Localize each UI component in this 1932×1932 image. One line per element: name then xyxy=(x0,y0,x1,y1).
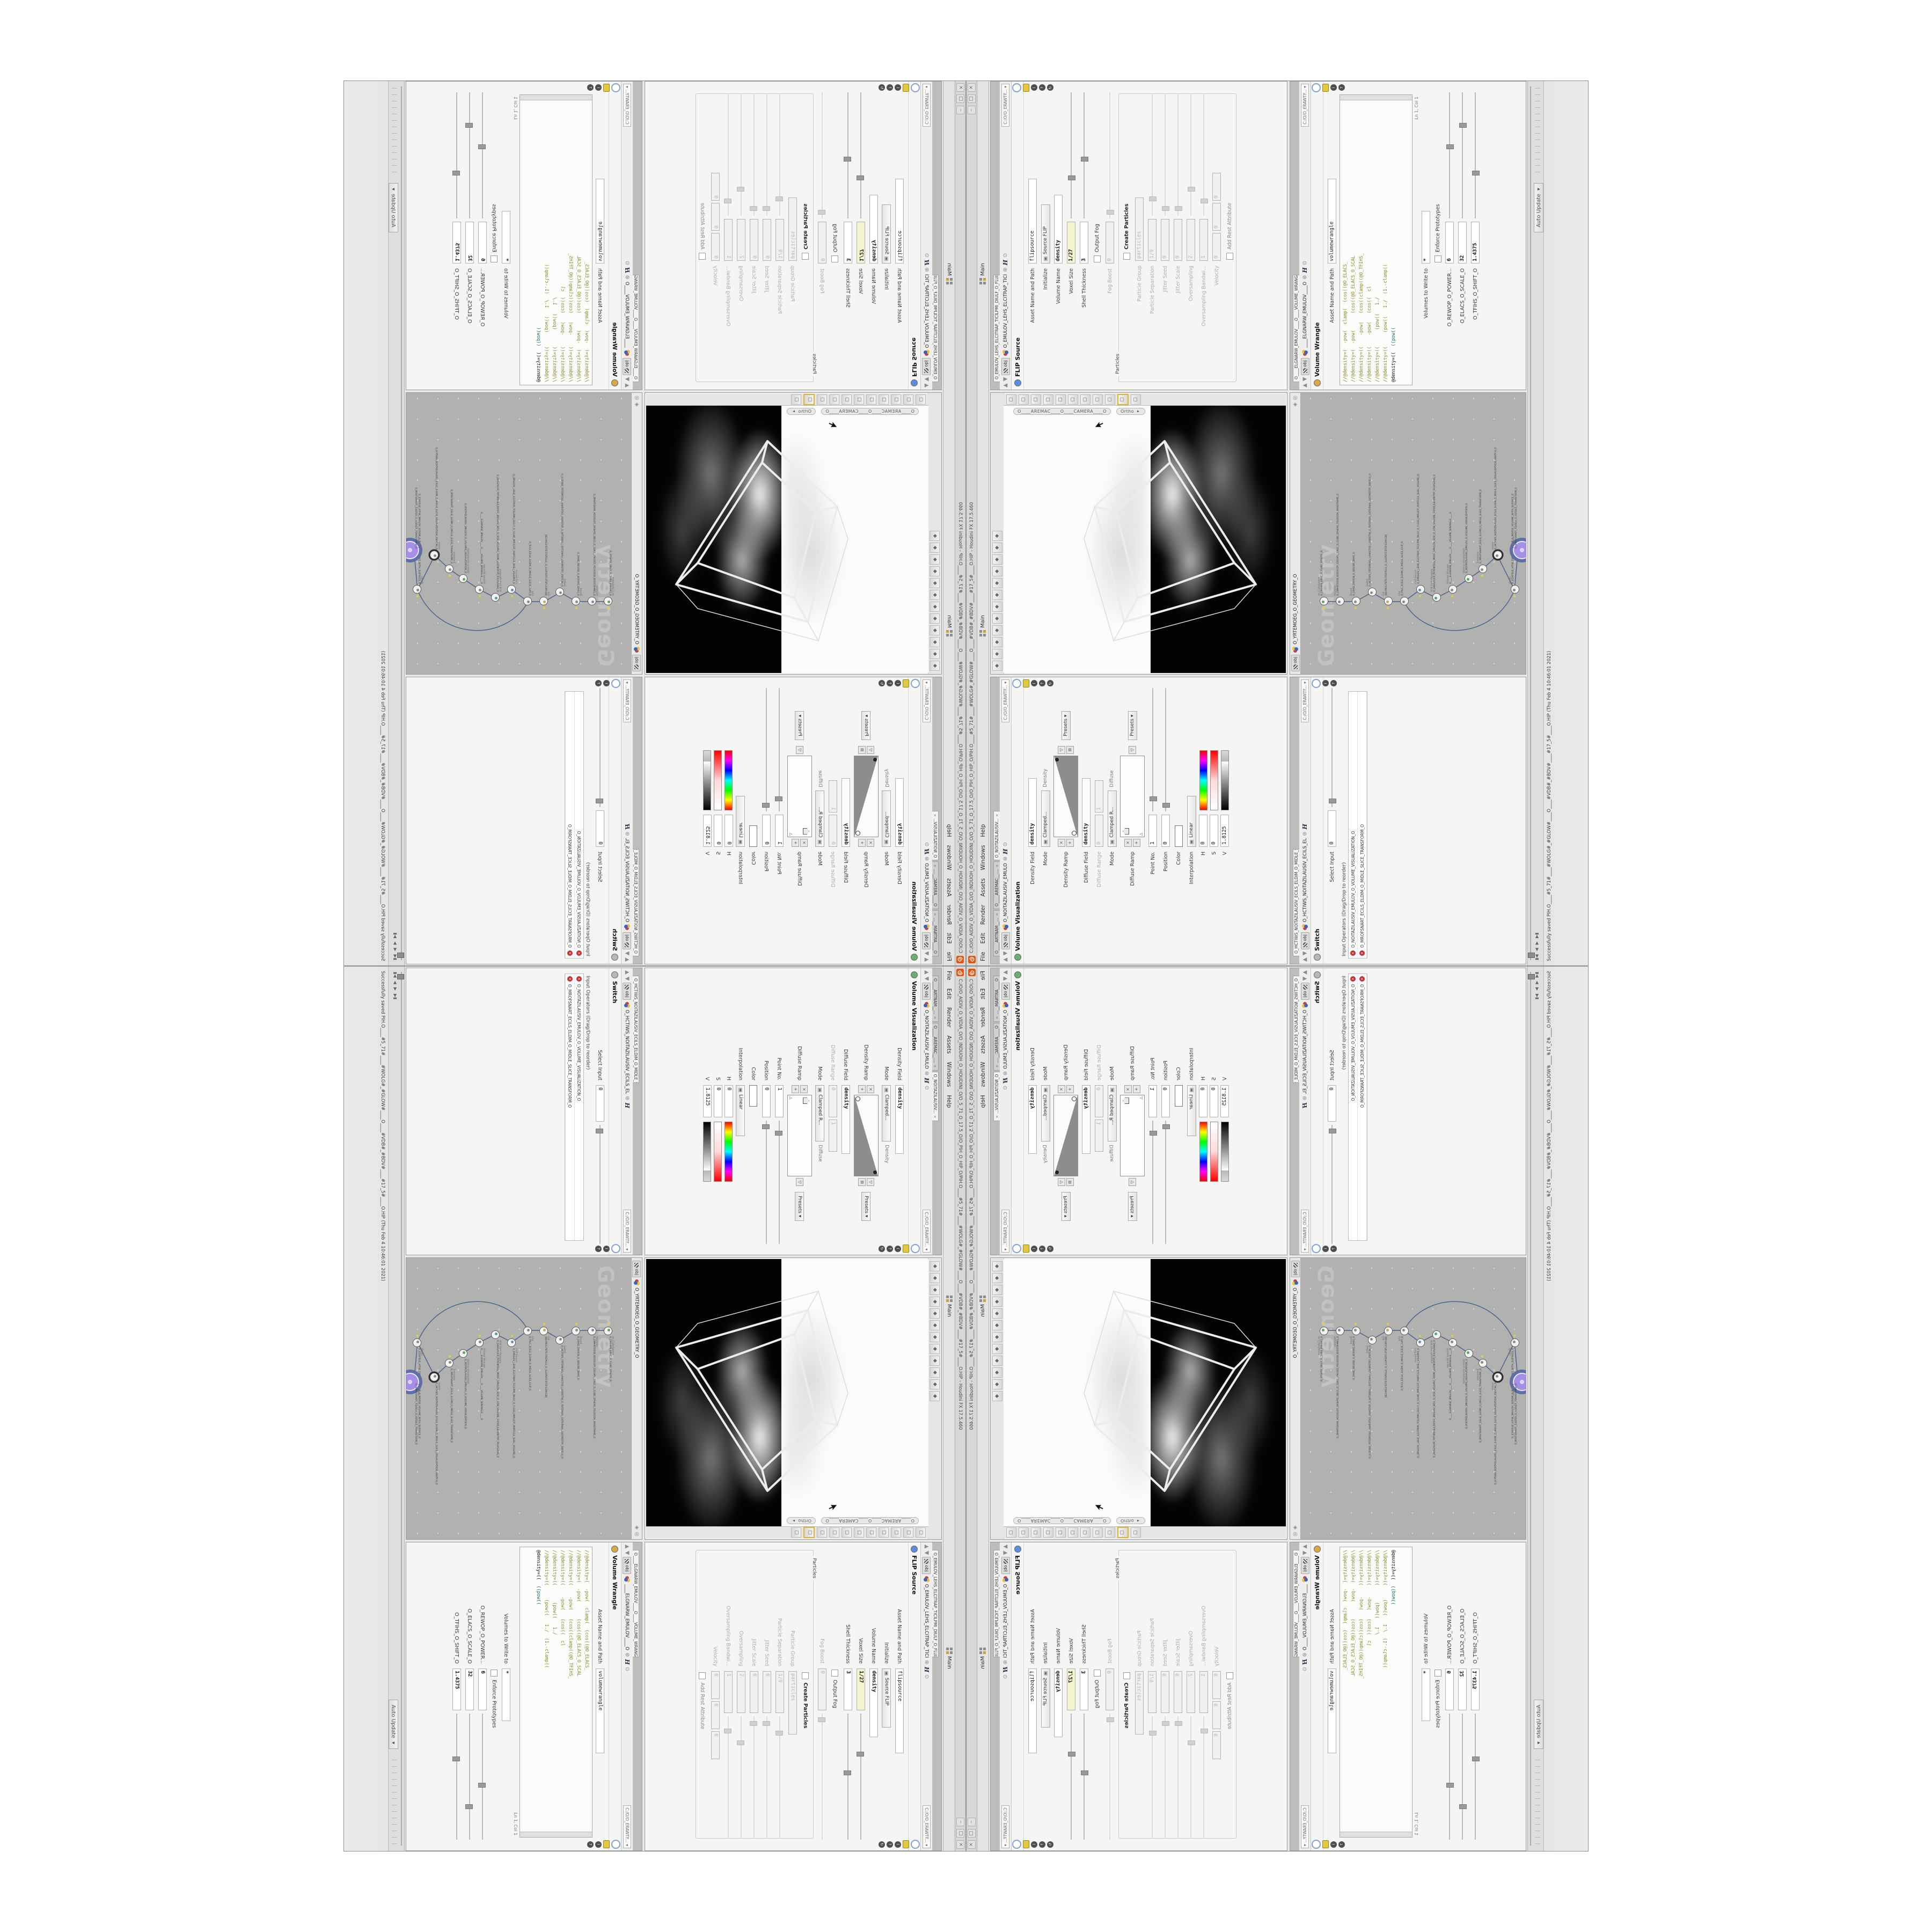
obj-context-chip[interactable]: obj xyxy=(633,1261,641,1277)
tripod-icon[interactable]: ▢ xyxy=(1056,1527,1066,1538)
node-circle[interactable] xyxy=(1384,597,1393,605)
presets-dropdown[interactable]: Presets ▾ xyxy=(1128,711,1137,740)
fog-boost-slider[interactable] xyxy=(818,92,826,218)
houdini-help-icon[interactable]: H xyxy=(923,1078,930,1083)
jitter-scale-slider[interactable] xyxy=(750,94,758,216)
enforce-prototypes-checkbox[interactable] xyxy=(491,255,498,262)
select-input-field[interactable]: 0 xyxy=(1328,810,1336,847)
shell-thickness-slider[interactable] xyxy=(1080,1714,1088,1840)
node-flag-dot[interactable] xyxy=(608,607,610,609)
node-circle[interactable] xyxy=(1352,597,1360,605)
input-operator-row[interactable]: ×O_NOITAZILAUSIV_EMULOV_O_VOLUME_VISUALI… xyxy=(574,974,583,1240)
node-flag-dot[interactable] xyxy=(479,1335,481,1337)
node-circle[interactable] xyxy=(1320,1327,1328,1335)
pane-tabbar[interactable]: O_HCTIWS_NOITAZILAUSIV_ECILS_ELDIM_O_MID… xyxy=(1290,968,1299,1255)
network-path[interactable]: O_YRTEMOEG_O_GEOMETRY_O xyxy=(1293,574,1298,645)
diffuse-field-input[interactable]: density xyxy=(1082,778,1091,847)
position-input[interactable]: 0 xyxy=(1161,815,1170,847)
node-circle[interactable] xyxy=(539,597,548,605)
voxel-size-slider[interactable] xyxy=(857,92,865,218)
radial-menu-icon[interactable] xyxy=(911,83,920,92)
close-tab-icon[interactable]: × xyxy=(933,913,938,916)
software-path-dropdown[interactable]: C:/O/O_ERAWTF...▾ xyxy=(1301,679,1309,722)
network-path[interactable]: O_YRTEMOEG_O_GEOMETRY_O xyxy=(1293,1287,1298,1358)
network-node[interactable]: Volume VisualizationO_NOITAZILAUSIV_EMUL… xyxy=(1465,574,1473,583)
radial-menu-icon[interactable] xyxy=(1012,679,1021,688)
houdini-help-icon[interactable]: H xyxy=(1002,1078,1009,1083)
pane-tabbar[interactable]: O____ARTNAM__...× O____AREMAC__....× O_N… xyxy=(932,968,941,1255)
obj-context-chip[interactable]: obj xyxy=(1301,1557,1309,1574)
breadcrumb[interactable]: O_EMULOV_LEHS_ELCITRAP_TICI xyxy=(1003,274,1008,348)
radial-menu-icon[interactable] xyxy=(1012,1840,1021,1849)
output-fog-checkbox[interactable] xyxy=(1094,1670,1101,1677)
network-node[interactable]: Volume WrangleO____ELGNARW_EMULOV____O__… xyxy=(1448,1338,1457,1347)
voxel-size-slider[interactable] xyxy=(1067,92,1075,218)
velocity-x-input[interactable]: 0 xyxy=(1212,233,1221,261)
view-pivot-icon[interactable]: ◆ xyxy=(992,566,1002,576)
desktop-chip[interactable]: Main xyxy=(979,1296,986,1317)
obj-context-chip[interactable]: obj xyxy=(1301,358,1309,375)
help-circle-icon[interactable]: ? xyxy=(887,1841,893,1848)
scale-input[interactable]: 32 xyxy=(465,222,474,264)
back-arrow-icon[interactable]: ▲ xyxy=(924,383,930,387)
saturation-bar[interactable] xyxy=(714,750,722,810)
houdini-help-icon[interactable]: H xyxy=(624,824,631,829)
remove-input-icon[interactable]: × xyxy=(1359,950,1365,956)
node-circle[interactable] xyxy=(507,1338,516,1347)
gear-icon[interactable]: ⊛ xyxy=(924,267,930,272)
snap-icon[interactable]: ◆ xyxy=(992,590,1002,600)
viewport-image[interactable]: O____AREMAC____O____CAMERA____O Ortho ▾ xyxy=(1004,1259,1286,1526)
menu-assets[interactable]: Assets xyxy=(980,1035,986,1053)
camera-lock-icon[interactable]: ◆ xyxy=(930,543,940,553)
saturation-input[interactable]: 0 xyxy=(1210,1085,1218,1117)
gear-icon[interactable]: ⊛ xyxy=(924,857,930,861)
hue-input[interactable]: 0 xyxy=(724,815,733,847)
grid-display-icon[interactable]: ▢ xyxy=(803,394,815,405)
magnifier-icon[interactable]: ⊙ xyxy=(1002,253,1008,258)
network-node[interactable]: FileJBO.MD1.PETS.TREPOLS_O_SLOPERT.STEP.… xyxy=(1384,1327,1393,1335)
ramp-flip-button[interactable]: ▽ xyxy=(1129,746,1136,754)
node-circle[interactable] xyxy=(1479,565,1487,573)
network-node[interactable]: SwitchO_HCTIWS_NOITAZILAUSIV_ECILS_ELDIM… xyxy=(430,1373,438,1381)
back-arrow-icon[interactable]: ▲ xyxy=(624,970,630,975)
value-input[interactable]: 1.8125 xyxy=(703,1085,712,1117)
radial-menu-icon[interactable] xyxy=(1012,1244,1021,1253)
lasso-icon[interactable]: ◆ xyxy=(992,1344,1002,1354)
add-rest-attribute-checkbox[interactable] xyxy=(1226,1672,1233,1679)
oversampling-slider[interactable] xyxy=(1187,94,1195,216)
network-node[interactable]: Volume VisualizationO_NOITAZILAUSIV_EMUL… xyxy=(1465,1349,1473,1358)
back-arrow-icon[interactable]: ▲ xyxy=(924,957,930,962)
asset-name-input[interactable]: volumewrangle xyxy=(1328,1668,1336,1753)
view-pivot-icon[interactable]: ◆ xyxy=(992,1356,1002,1366)
select-input-field[interactable]: 0 xyxy=(596,810,604,847)
oversampling-input[interactable]: 2 xyxy=(1187,219,1195,261)
tab-flip-source[interactable]: O_EMULOV_LEHS_ELCITRAP_TICILPMI_DIULF_O_… xyxy=(932,275,939,382)
value-bar[interactable] xyxy=(704,750,712,810)
input-operator-row[interactable]: ×O_NOITAZILAUSIV_EMULOV_O_VOLUME_VISUALI… xyxy=(1349,974,1358,1240)
network-node[interactable]: an_CubeSphereO_EREHPS_EBUC_O_CUBE_SPHERE… xyxy=(604,597,612,605)
obj-context-chip[interactable]: obj xyxy=(923,983,931,999)
translate-icon[interactable]: ◆ xyxy=(992,637,1002,647)
value-bar[interactable] xyxy=(704,1122,712,1182)
obj-context-chip[interactable]: obj xyxy=(923,1557,931,1574)
forward-arrow-icon[interactable]: ▼ xyxy=(1302,977,1308,981)
obj-context-chip[interactable]: obj xyxy=(1301,983,1309,999)
shift-input[interactable]: 1.4375 xyxy=(1471,222,1480,264)
oversampling-input[interactable]: 2 xyxy=(1187,1671,1195,1713)
ortho-pill[interactable]: Ortho ▾ xyxy=(1116,408,1145,415)
volumes-to-write-input[interactable]: * xyxy=(502,211,510,264)
pin-icon[interactable]: ◈ xyxy=(634,1526,640,1530)
magnifier-icon[interactable]: ⊙ xyxy=(624,261,630,265)
shell-thickness-slider[interactable] xyxy=(844,1714,852,1840)
display-options-icon[interactable]: ◆ xyxy=(992,1391,1002,1401)
obj-context-chip[interactable]: obj xyxy=(1291,655,1300,671)
interpolation-dropdown[interactable]: ◂▸Linear xyxy=(1187,1085,1196,1136)
network-path[interactable]: O_YRTEMOEG_O_GEOMETRY_O xyxy=(634,1287,640,1358)
help-circle-icon[interactable]: ? xyxy=(1039,1246,1045,1252)
network-node[interactable]: FLIP SourceO_EMULOV_LEHS_ELCITRAP_TICILP… xyxy=(1416,1338,1425,1347)
volumes-to-write-input[interactable]: * xyxy=(502,1668,510,1721)
density-ramp-widget[interactable] xyxy=(1053,1095,1078,1176)
menu-assets[interactable]: Assets xyxy=(946,879,953,897)
pose-icon[interactable]: ◆ xyxy=(992,1320,1002,1330)
power-slider[interactable] xyxy=(1446,1714,1453,1840)
scale-slider[interactable] xyxy=(466,1714,473,1840)
desktop-chip[interactable]: Main xyxy=(979,615,986,636)
gear-icon[interactable]: ⊛ xyxy=(1002,1660,1008,1664)
breadcrumb[interactable]: ____ELGNARW_EMULOV____O xyxy=(1302,1584,1308,1651)
asset-name-input[interactable]: flipsource xyxy=(1028,1668,1037,1753)
node-circle[interactable] xyxy=(1352,1327,1360,1335)
node-circle[interactable] xyxy=(445,565,453,573)
mode-dropdown[interactable]: ◂▸Clamped R... xyxy=(1108,1085,1117,1141)
ramp-delete-button[interactable]: × xyxy=(1058,839,1065,847)
software-path-dropdown[interactable]: C:/O/O_ERAWTF...▾ xyxy=(1301,1805,1309,1848)
software-path-dropdown[interactable]: C:/O/O_ERAWTF...▾ xyxy=(1001,1210,1009,1253)
camera-icon[interactable] xyxy=(603,84,610,92)
grid-display-icon[interactable]: ▢ xyxy=(1117,394,1129,405)
node-circle[interactable] xyxy=(1448,585,1457,594)
jitter-seed-slider[interactable] xyxy=(763,94,771,216)
houdini-help-icon[interactable]: H xyxy=(1301,1102,1308,1108)
network-node[interactable]: MergeO_ECAFRUS_HTIW_EMULOV_EGREM_O_MERGE… xyxy=(1511,585,1519,594)
position-slider[interactable] xyxy=(763,1121,770,1244)
software-path-dropdown[interactable]: C:/O/O_ERAWTF...▾ xyxy=(623,679,631,722)
forward-arrow-icon[interactable]: ▼ xyxy=(1002,952,1008,956)
node-circle[interactable] xyxy=(1465,574,1473,583)
hue-input[interactable]: 0 xyxy=(724,1085,733,1117)
diffuse-range-max[interactable]: 1 xyxy=(1095,780,1103,813)
close-tab-icon[interactable]: × xyxy=(933,1065,938,1068)
back-arrow-icon[interactable]: ▲ xyxy=(624,383,630,387)
help-circle-icon[interactable]: ? xyxy=(1039,1841,1045,1848)
close-tab-icon[interactable]: × xyxy=(933,1115,938,1118)
back-arrow-icon[interactable]: ▲ xyxy=(1002,1545,1008,1549)
view-pivot-icon[interactable]: ◆ xyxy=(930,1356,940,1366)
title-bar[interactable]: C:/O/O_AIDIV_O_VIDIA_O/O_INDUOH_O_HOUDIN… xyxy=(967,81,977,965)
node-circle[interactable] xyxy=(539,1327,548,1335)
sbs-icon[interactable]: ▢ xyxy=(841,1527,852,1538)
oversampling-bandwidth-slider[interactable] xyxy=(1200,94,1207,216)
target-icon[interactable]: ◎ xyxy=(634,1532,640,1536)
help-circle-icon[interactable]: ? xyxy=(1039,680,1045,687)
asset-name-input[interactable]: volumewrangle xyxy=(596,179,604,264)
maximize-button[interactable]: □ xyxy=(968,1829,976,1838)
code-scrollbar[interactable] xyxy=(520,95,592,100)
shift-slider[interactable] xyxy=(1472,92,1479,218)
network-node[interactable]: FileJBO.MD1.PETS.TREPOLS_O_SLOPERT.STEP.… xyxy=(539,1327,548,1335)
ramp-grid-button[interactable]: ⊞ xyxy=(858,746,866,754)
node-circle[interactable] xyxy=(459,574,467,583)
maximize-button[interactable]: □ xyxy=(956,94,964,103)
node-flag-dot[interactable] xyxy=(1322,607,1324,609)
forward-arrow-icon[interactable]: ▼ xyxy=(624,952,630,956)
display-options-icon[interactable]: ◆ xyxy=(930,531,940,541)
software-path-dropdown[interactable]: C:/O/O_ERAWTF...▾ xyxy=(1001,679,1009,722)
power-slider[interactable] xyxy=(479,1714,486,1840)
interpolation-dropdown[interactable]: ◂▸Linear xyxy=(736,796,745,847)
node-circle[interactable] xyxy=(1384,1327,1393,1335)
shift-slider[interactable] xyxy=(1472,1714,1479,1840)
saturation-input[interactable]: 0 xyxy=(714,815,722,847)
velocity-y-input[interactable]: 0 xyxy=(711,1701,720,1729)
power-slider[interactable] xyxy=(479,92,486,218)
radial-menu-icon[interactable] xyxy=(1312,1840,1321,1849)
software-path-dropdown[interactable]: C:/O/O_ERAWTF...▾ xyxy=(923,679,931,722)
node-circle[interactable] xyxy=(475,585,484,594)
orbit-icon[interactable]: ▢ xyxy=(791,394,801,405)
select-input-slider[interactable] xyxy=(1328,1125,1336,1244)
point-no-input[interactable]: 1 xyxy=(775,1085,784,1117)
create-particles-checkbox[interactable] xyxy=(802,253,809,260)
vex-snippet-editor[interactable]: //@density=( -pow( clamp( (cos((@O_ELACS… xyxy=(1340,1547,1413,1838)
recook-circle-icon[interactable]: ↻ xyxy=(1047,680,1053,687)
magnifier-icon[interactable]: ⊙ xyxy=(924,253,930,258)
diffuse-range-max[interactable]: 1 xyxy=(829,1119,837,1152)
scale-icon[interactable]: ◆ xyxy=(930,613,940,624)
network-node[interactable]: VDB from PolygonsO_SNOGYLOP_YRTEMOEG_MOR… xyxy=(1432,1330,1441,1339)
mode-dropdown[interactable]: ◂▸Clamped... xyxy=(1041,791,1050,847)
breadcrumb[interactable]: ____ELGNARW_EMULOV____O xyxy=(625,282,630,348)
gear-icon[interactable]: ⊛ xyxy=(924,1660,930,1664)
gear-icon[interactable]: ⊛ xyxy=(624,1652,630,1657)
compass-icon[interactable]: ▢ xyxy=(1105,1527,1115,1538)
ghost-objects-icon[interactable]: ▢ xyxy=(903,394,913,405)
network-node[interactable]: SwitchO_HCTIWS_NOITAZILAUSIV_ECILS_ELDIM… xyxy=(1494,1373,1502,1381)
camera-icon[interactable] xyxy=(1023,1840,1029,1848)
initialize-dropdown[interactable]: ◂▸Source FLIP xyxy=(1041,1668,1050,1728)
close-button[interactable]: × xyxy=(956,83,964,92)
jitter-seed-input[interactable]: 0 xyxy=(763,1671,771,1713)
density-ramp-widget[interactable] xyxy=(854,756,879,837)
tab-volume-wrangle[interactable]: O____ELGNARW_EMULOV____O____VOLUME_WRANG… xyxy=(633,1550,639,1657)
node-circle[interactable] xyxy=(572,597,580,605)
network-node[interactable]: FLIP SourceO_EMULOV_LEHS_ELCITRAP_TICILP… xyxy=(507,585,516,594)
menu-windows[interactable]: Windows xyxy=(946,1062,953,1087)
timeline-track[interactable] xyxy=(401,972,402,1846)
recook-circle-icon[interactable]: ↻ xyxy=(879,1246,885,1252)
node-circle[interactable] xyxy=(1368,1336,1377,1344)
info-circle-icon[interactable]: i xyxy=(603,1246,610,1252)
node-circle[interactable] xyxy=(1336,1327,1344,1335)
camera-pill[interactable]: O____AREMAC____O____CAMERA____O xyxy=(1013,1517,1111,1524)
tab-mantra[interactable]: O____ARTNAM__...× xyxy=(932,976,939,1022)
timeline-track[interactable] xyxy=(1530,86,1531,960)
fog-boost-input[interactable]: 0 xyxy=(1106,222,1114,264)
remove-input-icon[interactable]: × xyxy=(1350,976,1356,982)
obj-context-chip[interactable]: obj xyxy=(1291,1261,1300,1277)
input-operator-row[interactable]: ×O_NOITAZILAUSIV_EMULOV_O_VOLUME_VISUALI… xyxy=(574,692,583,958)
minimize-button[interactable]: – xyxy=(968,106,976,114)
close-tab-icon[interactable]: × xyxy=(933,1016,938,1019)
power-slider[interactable] xyxy=(1446,92,1453,218)
help-circle-icon[interactable]: ? xyxy=(1039,85,1045,91)
camera-pill[interactable]: O____AREMAC____O____CAMERA____O xyxy=(1013,408,1111,415)
initialize-dropdown[interactable]: ◂▸Source FLIP xyxy=(882,204,891,264)
breadcrumb[interactable]: O_EMULOV_LEHS_ELCITRAP_TICI xyxy=(924,274,930,348)
snap-icon[interactable]: ◆ xyxy=(930,590,940,600)
play-button[interactable]: ▶ xyxy=(393,987,398,991)
back-arrow-icon[interactable]: ▲ xyxy=(1302,383,1308,387)
menu-assets[interactable]: Assets xyxy=(980,879,986,897)
dashed-circle-icon[interactable]: ▢ xyxy=(1068,394,1078,405)
volume-name-input[interactable]: density xyxy=(1054,1668,1063,1737)
enforce-prototypes-checkbox[interactable] xyxy=(1435,255,1441,262)
pin-icon[interactable]: ◈ xyxy=(634,402,640,407)
oversampling-bandwidth-input[interactable]: 1 xyxy=(724,1671,733,1713)
node-circle[interactable] xyxy=(1432,1330,1441,1339)
forward-arrow-icon[interactable]: ▼ xyxy=(624,377,630,382)
magnifier-icon[interactable]: ⊙ xyxy=(624,1667,630,1671)
ghost-objects-icon[interactable]: ▢ xyxy=(1019,394,1029,405)
title-bar[interactable]: C:/O/O_AIDIV_O_VIDIA_O/O_INDUOH_O_HOUDIN… xyxy=(955,81,965,965)
magnifier-icon[interactable]: ⊙ xyxy=(924,1086,930,1090)
houdini-help-icon[interactable]: H xyxy=(1002,1667,1009,1672)
close-button[interactable]: × xyxy=(956,1840,964,1849)
network-node[interactable]: PolyWireO_EMARFERIW_NOGYLOP_EREHPS_EBUC_… xyxy=(588,597,596,605)
close-tab-icon[interactable]: × xyxy=(995,864,999,867)
ramp-grid-button[interactable]: ⊞ xyxy=(1066,1178,1074,1186)
gear-icon[interactable]: ⊛ xyxy=(624,832,630,836)
node-circle[interactable] xyxy=(555,1336,564,1344)
asset-name-input[interactable]: flipsource xyxy=(895,179,904,264)
grid-display-icon[interactable]: ▢ xyxy=(1117,1527,1129,1538)
fog-boost-slider[interactable] xyxy=(1106,1714,1114,1840)
vex-snippet-editor[interactable]: //@density=( -pow( clamp( (cos((@O_ELACS… xyxy=(519,1547,592,1838)
ramp-grid-button[interactable]: ⊞ xyxy=(1066,746,1074,754)
ramp-flip-button[interactable]: ▽ xyxy=(867,1178,874,1186)
presets-dropdown[interactable]: Presets ▾ xyxy=(1062,1192,1071,1221)
velocity-z-input[interactable]: 0 xyxy=(1212,1731,1221,1759)
network-grid[interactable]: Geometry an_CubeSphereO_EREHPS_EBUC_O_CU… xyxy=(1300,393,1526,674)
timeline-track[interactable] xyxy=(1530,972,1531,1846)
point-no-slider[interactable] xyxy=(1149,688,1157,811)
back-arrow-icon[interactable]: ▲ xyxy=(1002,970,1008,975)
volumes-to-write-input[interactable]: * xyxy=(1422,1668,1430,1721)
network-node[interactable]: SwitchO_HCTIWS_NOITAZILAUSIV_ECILS_ELDIM… xyxy=(1494,551,1502,559)
network-node[interactable]: TransformO_MROFSNART_ECILS_ELDIM_O_MIDLE… xyxy=(445,565,453,573)
node-circle[interactable] xyxy=(1465,1349,1473,1358)
voxel-size-input[interactable]: 1/27 xyxy=(857,222,865,264)
lasso-icon[interactable]: ◆ xyxy=(930,1344,940,1354)
node-circle[interactable] xyxy=(430,551,438,559)
forward-arrow-icon[interactable]: ▼ xyxy=(924,952,930,956)
node-flag-dot[interactable] xyxy=(511,1335,513,1337)
pane-tabbar[interactable]: O____ELGNARW_EMULOV____O____VOLUME_WRANG… xyxy=(633,1542,642,1850)
particle-group-input[interactable]: particles xyxy=(788,1671,797,1735)
value-input[interactable]: 1.8125 xyxy=(703,815,712,847)
software-path-dropdown[interactable]: C:/O/O_ERAWTF...▾ xyxy=(1301,84,1309,127)
density-ramp-widget[interactable] xyxy=(854,1095,879,1176)
minimize-button[interactable]: – xyxy=(956,106,964,114)
menu-help[interactable]: Help xyxy=(946,1095,953,1108)
obj-context-chip[interactable]: obj xyxy=(923,358,931,375)
velocity-x-input[interactable]: 0 xyxy=(711,1671,720,1699)
node-flag-dot[interactable] xyxy=(1513,595,1516,597)
volume-name-input[interactable]: density xyxy=(869,195,878,264)
menu-edit[interactable]: Edit xyxy=(946,933,953,943)
menu-help[interactable]: Help xyxy=(946,824,953,837)
viewport-image[interactable]: O____AREMAC____O____CAMERA____O Ortho ▾ xyxy=(1004,406,1286,673)
camera-lock-icon[interactable]: ◆ xyxy=(930,1379,940,1389)
node-flag-dot[interactable] xyxy=(575,1323,577,1325)
diffuse-range-min[interactable]: 0 xyxy=(1095,815,1103,847)
gear-icon[interactable]: ⊛ xyxy=(624,1096,630,1100)
oversampling-bandwidth-slider[interactable] xyxy=(724,94,732,216)
pane-tabbar[interactable]: O_HCTIWS_NOITAZILAUSIV_ECILS_ELDIM_O_MID… xyxy=(633,968,642,1255)
rotate-icon[interactable]: ◆ xyxy=(992,625,1002,635)
magnifier-icon[interactable]: ⊙ xyxy=(1302,1667,1308,1671)
snap-icon[interactable]: ◆ xyxy=(992,1332,1002,1342)
diffuse-ramp-widget[interactable]: △ xyxy=(1120,756,1145,837)
network-node[interactable]: BoundO_EKAB_DNUOB_O_BOUND_BAKE_O xyxy=(572,1327,580,1335)
particle-separation-input[interactable]: 1/9 xyxy=(775,219,784,261)
particle-group-input[interactable]: particles xyxy=(1135,1671,1144,1735)
scale-icon[interactable]: ◆ xyxy=(992,1308,1002,1319)
step-back-button[interactable]: ◀ xyxy=(1534,981,1539,984)
minimize-button[interactable]: – xyxy=(968,1818,976,1826)
diffuse-field-input[interactable]: density xyxy=(841,778,850,847)
power-input[interactable]: 6 xyxy=(478,222,487,264)
ortho-pill[interactable]: Ortho ▾ xyxy=(787,1517,816,1524)
ramp-flip-button[interactable]: ▽ xyxy=(867,746,874,754)
houdini-help-icon[interactable]: H xyxy=(1301,1659,1308,1665)
close-tab-icon[interactable]: × xyxy=(995,814,999,817)
breadcrumb[interactable]: O_NOITAZILAUSIV_EMULO xyxy=(1003,863,1008,922)
hue-bar[interactable] xyxy=(1199,750,1207,810)
close-tab-icon[interactable]: × xyxy=(995,1115,999,1118)
tab-flip-source[interactable]: O_EMULOV_LEHS_ELCITRAP_TICILPMI_DIULF_O_… xyxy=(932,1550,939,1657)
box-select-icon[interactable]: ◆ xyxy=(992,1273,1002,1283)
position-input[interactable]: 0 xyxy=(1161,1085,1170,1117)
hide-objects-icon[interactable]: ▢ xyxy=(1006,1527,1016,1538)
tab-volume-wrangle[interactable]: O____ELGNARW_EMULOV____O____VOLUME_WRANG… xyxy=(1293,1550,1299,1657)
color-swatch[interactable] xyxy=(750,825,758,847)
network-grid[interactable]: Geometry an_CubeSphereO_EREHPS_EBUC_O_CU… xyxy=(406,1258,632,1539)
node-circle[interactable] xyxy=(445,1359,453,1367)
recook-circle-icon[interactable]: ↻ xyxy=(1047,1841,1053,1848)
color-swatch[interactable] xyxy=(750,1085,758,1107)
menu-render[interactable]: Render xyxy=(946,905,953,925)
auto-update-dropdown[interactable]: Auto Update▾ xyxy=(389,1700,398,1749)
network-node[interactable]: FileJBO.MD1.PETS.TREPOLS_O_SLOPERT.STEP.… xyxy=(539,597,548,605)
input-operator-row[interactable]: ×O_NOITAZILAUSIV_EMULOV_O_VOLUME_VISUALI… xyxy=(1349,692,1358,958)
network-node[interactable]: VDB from PolygonsO_SNOGYLOP_YRTEMOEG_MOR… xyxy=(491,1330,500,1339)
desktop-chip[interactable]: Main xyxy=(946,615,953,636)
